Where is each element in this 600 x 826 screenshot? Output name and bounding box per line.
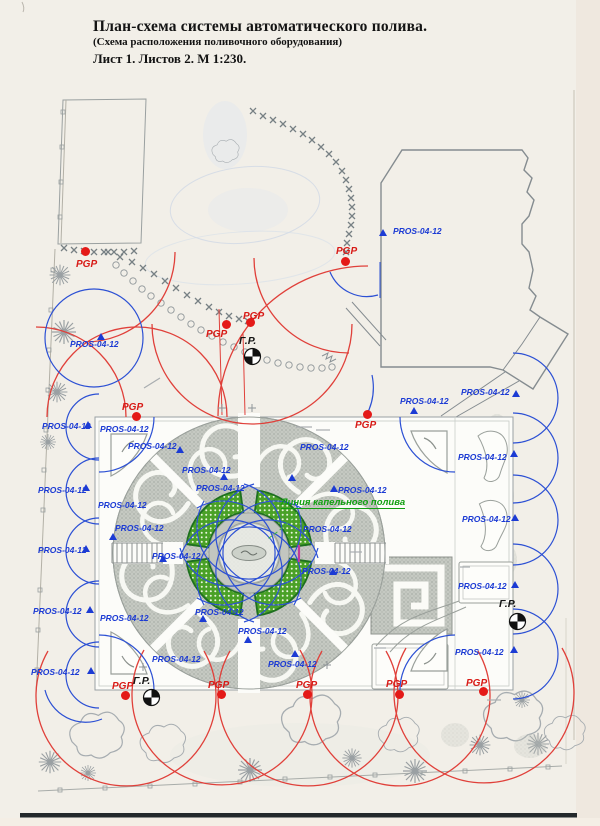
plan-title: План-схема системы автоматического полив… <box>93 17 563 36</box>
paper-artifacts <box>0 0 600 826</box>
plan-subtitle: (Схема расположения поливочного оборудов… <box>93 36 563 50</box>
site-plan-drawing <box>0 0 600 826</box>
sheet-info: Лист 1. Листов 2. М 1:230. <box>93 51 563 67</box>
central-parterre <box>109 413 389 693</box>
title-block: План-схема системы автоматического полив… <box>93 17 563 67</box>
scanned-irrigation-plan: План-схема системы автоматического полив… <box>0 0 600 826</box>
